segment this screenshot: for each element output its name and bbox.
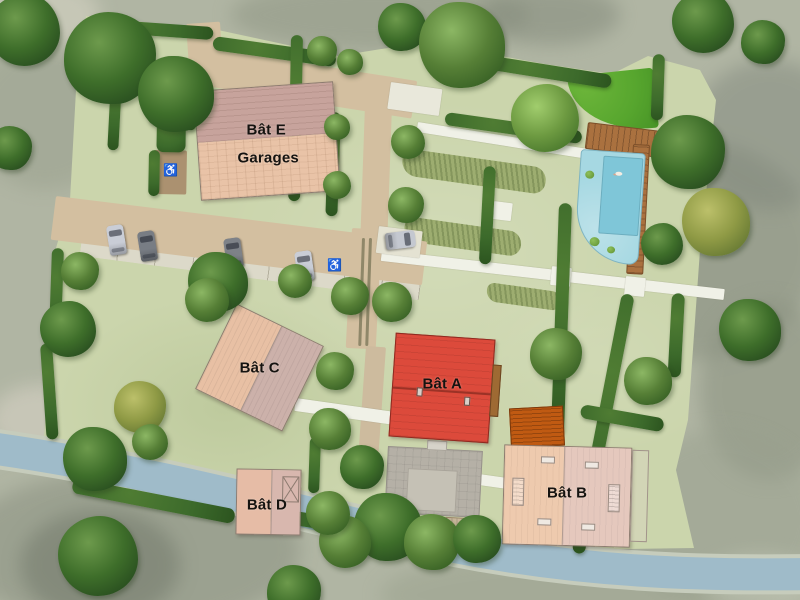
water-plant-icon xyxy=(585,170,595,179)
swimmer-icon xyxy=(615,171,622,175)
tree xyxy=(741,20,785,64)
bat-b-stair xyxy=(512,478,525,506)
tree xyxy=(682,188,750,256)
tree xyxy=(324,114,350,140)
label-garages: Garages xyxy=(237,150,298,167)
car-windshield xyxy=(296,255,310,263)
car-windshield xyxy=(108,229,122,237)
pool-basin xyxy=(598,156,643,237)
building-bat-b: Bât B xyxy=(502,444,633,547)
wheelchair-icon: ♿ xyxy=(327,259,342,271)
tree xyxy=(40,301,96,357)
tree xyxy=(337,49,363,75)
bat-b-roof-window xyxy=(581,523,595,530)
building-bat-e: Bât E Garages xyxy=(193,81,340,200)
bat-b-extension-outline xyxy=(630,450,649,542)
tree xyxy=(306,491,350,535)
label-bat-c: Bât C xyxy=(239,359,279,376)
tree xyxy=(340,445,384,489)
tree xyxy=(391,125,425,159)
car-rear-window xyxy=(387,235,393,248)
tree xyxy=(331,277,369,315)
building-bat-a: Bât A xyxy=(388,333,495,444)
tree xyxy=(453,515,501,563)
label-bat-b: Bât B xyxy=(547,485,587,502)
tree xyxy=(185,278,229,322)
label-bat-a: Bât A xyxy=(422,375,462,392)
terrace-steps xyxy=(427,440,447,451)
tree xyxy=(372,282,412,322)
tree xyxy=(641,223,683,265)
bat-b-roof-window xyxy=(541,456,555,463)
site-plan: Bât E Garages Bât C Bât A Bât B Bât D xyxy=(0,0,800,600)
car-windshield xyxy=(225,242,239,250)
tree xyxy=(323,171,351,199)
building-bat-d: Bât D xyxy=(235,468,301,535)
tree xyxy=(419,2,505,88)
tree xyxy=(61,252,99,290)
tree xyxy=(132,424,168,460)
hedge xyxy=(148,150,160,196)
tree xyxy=(651,115,725,189)
tree xyxy=(388,187,424,223)
label-bat-d: Bât D xyxy=(246,497,286,514)
tree xyxy=(624,357,672,405)
parked-car xyxy=(384,230,416,251)
bat-b-stair xyxy=(608,484,621,512)
car-windshield xyxy=(139,235,153,243)
tree xyxy=(278,264,312,298)
water-plant-icon xyxy=(589,237,600,247)
tree xyxy=(309,408,351,450)
tree xyxy=(404,514,460,570)
tree xyxy=(316,352,354,390)
bat-a-door xyxy=(464,397,471,406)
tree xyxy=(511,84,579,152)
car-windshield xyxy=(403,232,411,246)
tree xyxy=(530,328,582,380)
hedge xyxy=(651,54,665,120)
tree xyxy=(138,56,214,132)
bat-b-roof-window xyxy=(585,461,599,468)
tree xyxy=(719,299,781,361)
car-rear-window xyxy=(142,253,155,259)
water-plant-icon xyxy=(607,246,615,254)
bat-b-roof-window xyxy=(537,518,551,525)
car-rear-window xyxy=(111,247,124,253)
bat-b-annex xyxy=(509,406,565,449)
label-bat-e: Bât E xyxy=(247,122,286,139)
tree xyxy=(58,516,138,596)
tree xyxy=(63,427,127,491)
wheelchair-icon: ♿ xyxy=(163,164,178,176)
tree xyxy=(307,36,337,66)
